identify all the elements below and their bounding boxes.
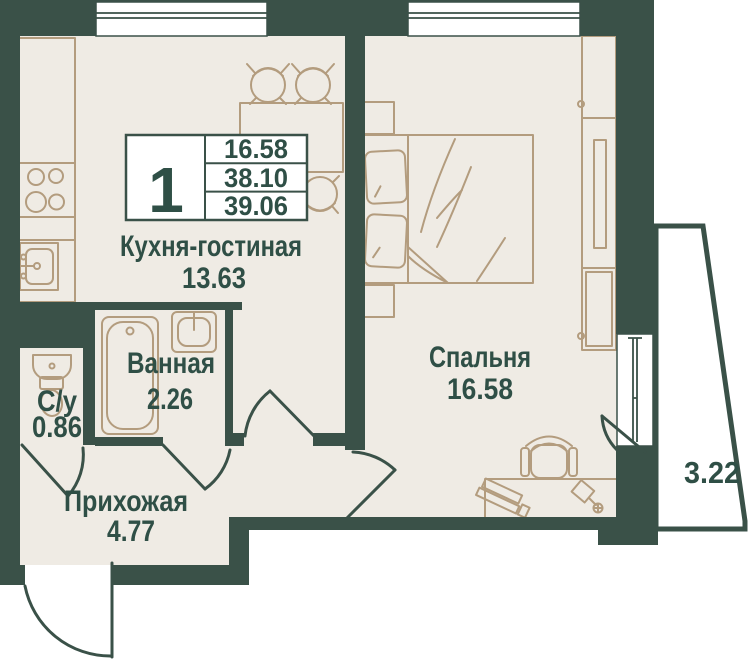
kitchen-label: Кухня-гостиная [120, 230, 302, 263]
wall-wc-bath-divider [83, 302, 95, 445]
unit-number: 1 [148, 154, 184, 226]
hallway-label: Прихожая [64, 485, 188, 518]
legend-area-1: 16.58 [224, 134, 288, 164]
legend-area-3: 39.06 [224, 191, 288, 221]
balcony-area: 3.22 [684, 455, 740, 490]
bedroom-window [408, 2, 580, 36]
wall-left [0, 0, 20, 585]
kitchen-window [96, 2, 267, 36]
wall-kitchen-bedroom [345, 36, 365, 450]
entrance-door [25, 563, 112, 657]
wall-right-upper [616, 0, 654, 334]
wall-bath-right [225, 310, 233, 437]
legend-area-2: 38.10 [224, 163, 288, 193]
wall-bottom-bedroom [229, 517, 657, 530]
wall-hall-bottom-right [112, 565, 249, 585]
legend-box: 1 16.58 38.10 39.06 [126, 134, 307, 226]
bathroom-area: 2.26 [147, 383, 193, 416]
bedroom-area: 16.58 [447, 373, 513, 406]
bedroom-label: Спальня [429, 341, 531, 374]
wall-bath-bottom [95, 437, 163, 446]
hallway-area: 4.77 [107, 515, 155, 548]
balcony-door-window [617, 334, 653, 446]
bathroom-label: Ванная [127, 347, 215, 380]
floor-plan: 1 16.58 38.10 39.06 Кухня-гостиная 13.63… [0, 0, 748, 662]
wall-hall-bottom-left [0, 565, 25, 585]
wc-area: 0.86 [32, 411, 82, 444]
wall-corner-chunk [598, 530, 658, 545]
kitchen-area: 13.63 [182, 262, 246, 295]
wall-stub-corridor-right [313, 433, 345, 446]
wall-stub-corridor-left [225, 433, 244, 446]
